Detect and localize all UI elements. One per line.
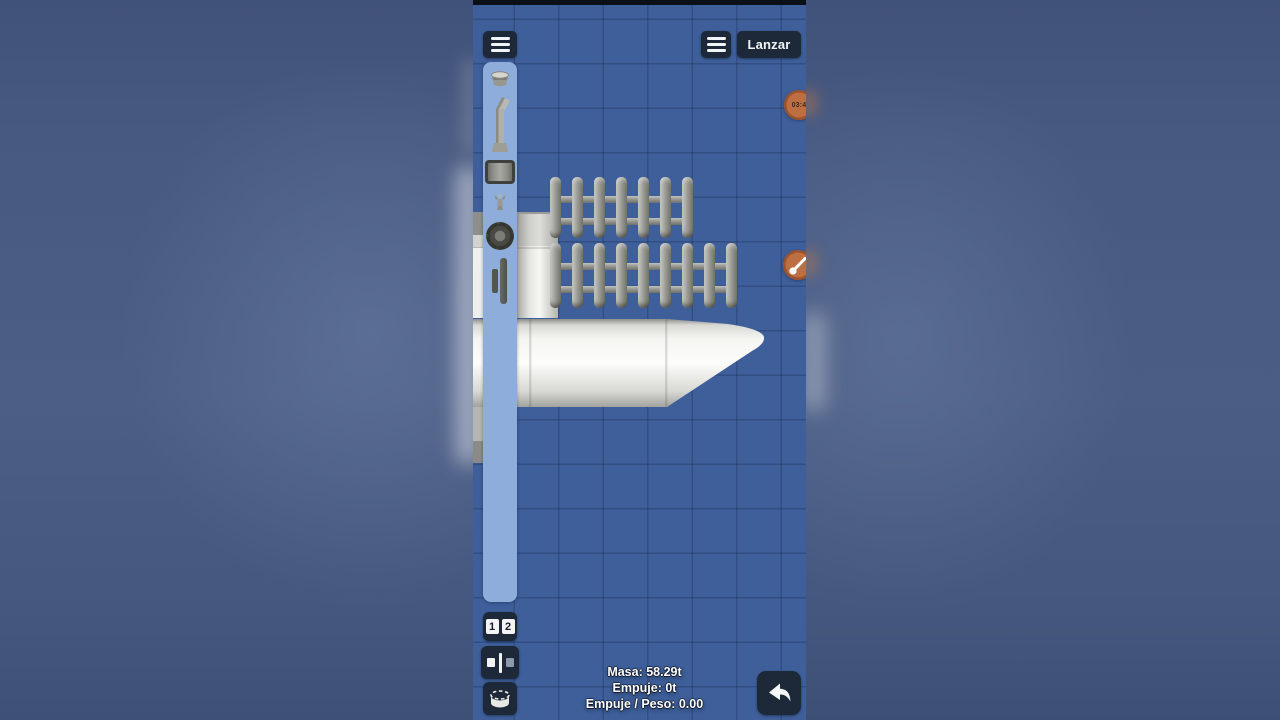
stage-2-button[interactable]: 2 [502,619,515,634]
part-capsule-icon[interactable] [488,70,512,88]
radiator-slat[interactable] [704,243,715,308]
side-stack-segment [473,235,483,247]
options-menu-button[interactable] [701,31,731,58]
radiator-slat[interactable] [616,243,627,308]
radiator-slat[interactable] [660,177,671,238]
paint-tool-badge[interactable] [783,250,806,280]
rotate-part-icon [488,687,512,711]
separator-bar [492,269,498,293]
timestamp-badge-label: 03:4 [792,102,806,109]
radiator-slat[interactable] [660,243,671,308]
side-stack-segment [473,212,483,235]
build-canvas[interactable]: Lanzar [473,0,806,720]
radiator-slat[interactable] [616,177,627,238]
part-engine-icon[interactable] [489,96,511,154]
fuel-tank-with-nose-cone-part[interactable] [473,318,769,408]
blur-smear [456,165,473,465]
radiator-row-bottom[interactable] [550,243,737,308]
stage-1-button[interactable]: 1 [486,619,499,634]
radiator-slat[interactable] [726,243,737,308]
video-frame: Lanzar [0,0,1280,720]
radiator-slat[interactable] [550,243,561,308]
side-stack-segment [473,407,483,441]
hamburger-menu-icon [707,37,726,52]
launch-button-label: Lanzar [747,37,790,52]
side-stack-segment [473,441,483,463]
radiator-slat[interactable] [550,177,561,238]
radiator-slat[interactable] [638,177,649,238]
radiator-slat[interactable] [572,243,583,308]
staging-button[interactable]: 1 2 [483,612,517,641]
symmetry-button[interactable] [481,646,519,679]
symmetry-icon [506,658,514,667]
symmetry-icon [487,658,495,667]
blur-smear [462,58,473,153]
radiator-slat[interactable] [594,243,605,308]
letterbox-left [0,0,473,720]
parts-sidebar[interactable] [483,62,517,602]
radiator-row-top[interactable] [550,177,693,238]
radiator-slat[interactable] [682,177,693,238]
rotate-part-button[interactable] [483,682,517,715]
symmetry-icon [499,653,502,673]
status-bar-strip [473,0,806,5]
side-stack-segment [473,247,483,318]
radiator-slat[interactable] [594,177,605,238]
tank-seam [665,319,668,407]
undo-icon [765,679,793,707]
paintbrush-icon [784,251,806,279]
hamburger-menu-icon [491,37,510,52]
timestamp-badge: 03:4 [784,90,806,120]
part-fuel-tank-icon[interactable] [485,160,515,184]
part-separator-icon[interactable] [491,258,509,304]
blur-smear [806,90,816,116]
undo-button[interactable] [757,671,801,715]
radiator-slat[interactable] [638,243,649,308]
nose-cone[interactable] [667,319,764,407]
part-reaction-wheel-icon[interactable] [486,222,514,250]
launch-button[interactable]: Lanzar [737,31,801,58]
radiator-slat[interactable] [682,243,693,308]
letterbox-right [806,0,1280,720]
blur-smear [806,250,816,276]
tank-seam [529,319,532,407]
part-rcs-thruster-icon[interactable] [492,194,508,212]
blur-smear [806,312,825,412]
radiator-slat[interactable] [572,177,583,238]
menu-button[interactable] [483,31,517,58]
separator-bar [500,258,507,304]
